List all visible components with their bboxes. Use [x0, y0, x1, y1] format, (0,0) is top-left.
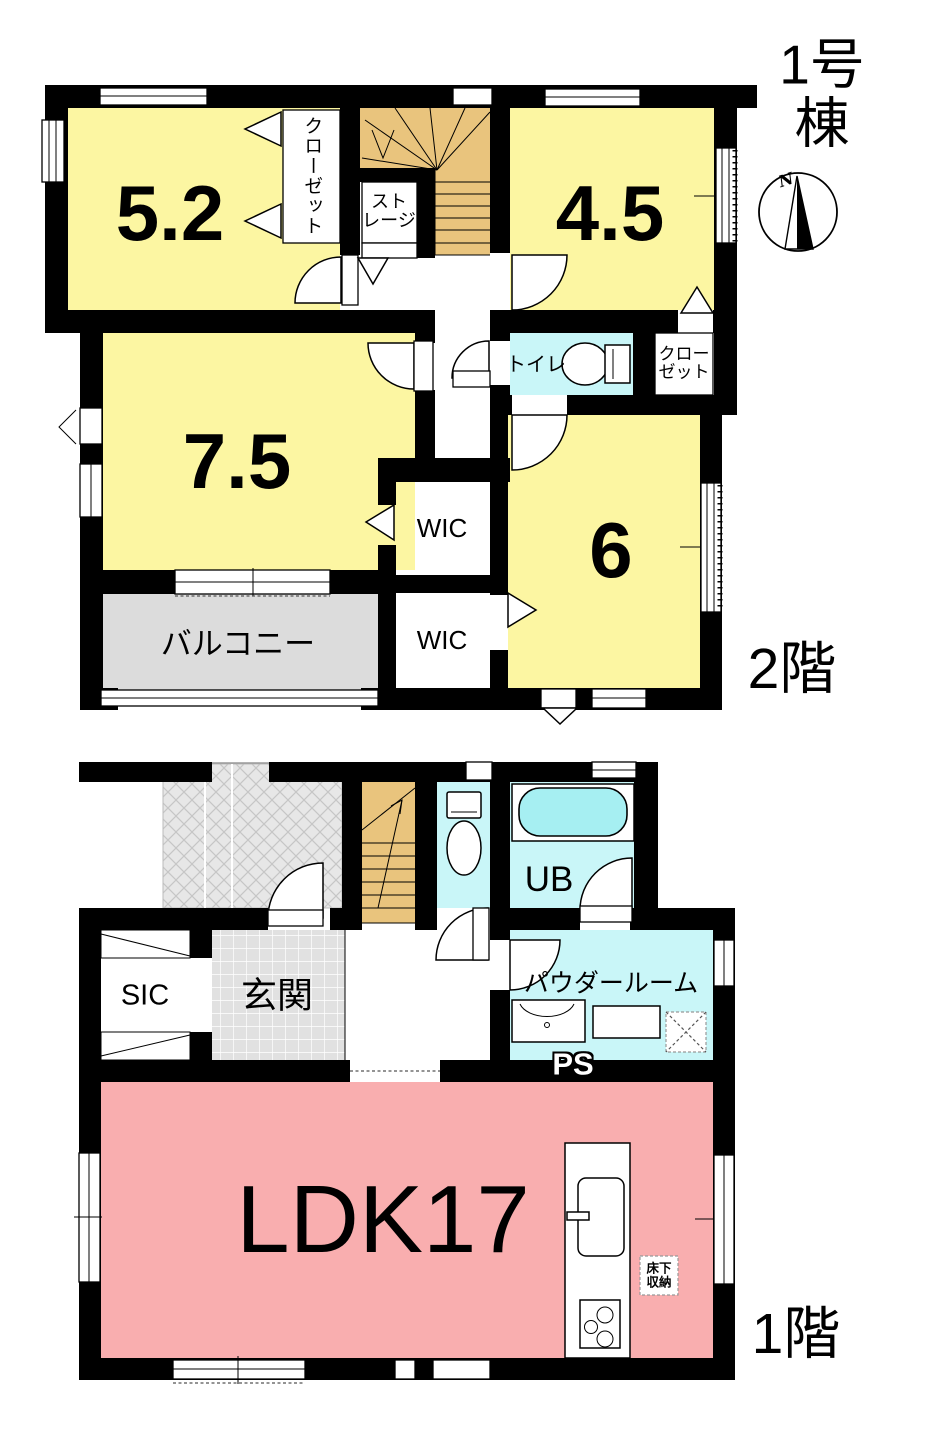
window-swing-mark: [59, 410, 76, 444]
floor2-label: 2階: [748, 639, 837, 701]
floor-plan-page: 1号棟 N 5.2 4.5 7.5 6 クローゼット スト レージ トイレ クロ…: [0, 0, 939, 1448]
bath-label: UB: [525, 861, 574, 899]
window-opening-mark: [543, 708, 577, 724]
kitchen-faucet: [567, 1212, 589, 1220]
kitchen-stove: [580, 1300, 620, 1348]
closet-right-label: クロー ゼット: [659, 346, 710, 383]
entrance-label: 玄関: [241, 977, 313, 1016]
sic-label: SIC: [121, 980, 169, 1011]
stairs-1f: [362, 782, 415, 923]
wic-lower-label: WIC: [417, 626, 468, 654]
building-title: 1号棟: [764, 36, 881, 155]
storage-opening-mark: [358, 258, 388, 284]
wic-upper-label: WIC: [417, 514, 468, 542]
room-label-7-5: 7.5: [183, 419, 291, 503]
room-label-5-2: 5.2: [116, 171, 224, 255]
ldk-label: LDK17: [236, 1168, 530, 1272]
kitchen-icon: [565, 1143, 630, 1358]
compass: [759, 173, 837, 251]
floor1-label: 1階: [752, 1304, 841, 1366]
powder-room-label: パウダールーム: [524, 971, 698, 998]
balcony-label: バルコニー: [161, 627, 315, 660]
washer-pan-icon: [666, 1012, 706, 1052]
underfloor-storage-label: 床下 収納: [646, 1263, 671, 1290]
room-label-6: 6: [589, 508, 632, 592]
pipe-space-label: PS: [552, 1047, 593, 1080]
storage-door-leaf: [362, 243, 417, 258]
toilet-icon-2f: [562, 343, 630, 385]
storage-label: スト レージ: [362, 193, 416, 232]
room-label-4-5: 4.5: [556, 171, 664, 255]
toilet2f-label: トイレ: [506, 355, 566, 377]
balcony-rail: [101, 690, 378, 706]
toilet-icon-1f: [447, 792, 481, 875]
bathtub-icon: [512, 784, 634, 841]
closet-left-label: クローゼット: [301, 116, 322, 236]
